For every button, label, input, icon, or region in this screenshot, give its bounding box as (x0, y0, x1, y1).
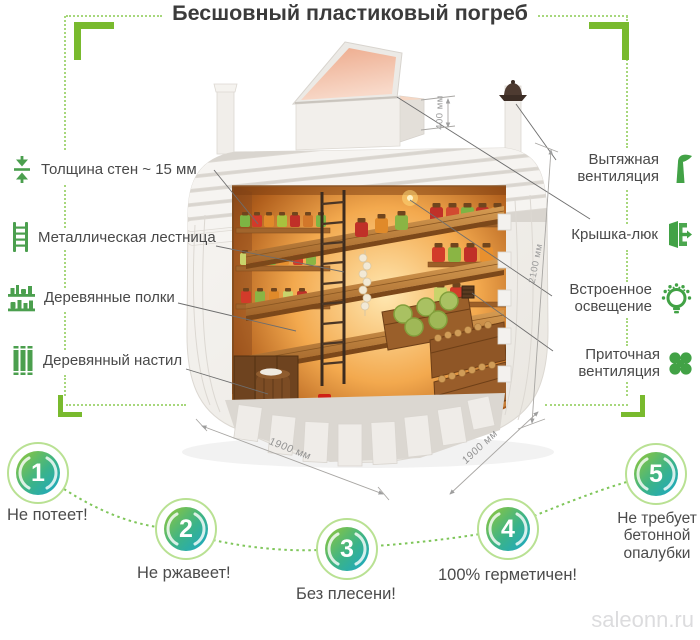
wooden-floor-icon (12, 346, 34, 375)
supply-vent-icon (669, 352, 692, 375)
label-row-wall-thickness: Толщина стен ~ 15 мм (12, 156, 197, 183)
benefit-label-5: Не требует бетонной опалубки (609, 510, 700, 562)
exhaust-vent-icon (668, 153, 692, 183)
feature-label: Металлическая лестница (38, 229, 216, 246)
benefit-label-1: Не потеет! (7, 506, 88, 525)
feature-label: Деревянный настил (43, 352, 182, 369)
benefit-number: 4 (501, 515, 515, 544)
built-in-lighting-icon (661, 282, 692, 315)
benefit-number: 5 (649, 460, 663, 489)
benefit-badge-3: 3 (316, 518, 378, 580)
dimension-hatch-height: 400 мм (435, 93, 446, 133)
watermark: saleonn.ru (591, 607, 694, 633)
wall-thickness-icon (12, 156, 32, 183)
benefit-label-4: 100% герметичен! (438, 566, 577, 585)
benefit-badge-5: 5 (625, 443, 687, 505)
label-row-exhaust-vent: Вытяжная вентиляция (571, 151, 692, 186)
benefit-label-2: Не ржавеет! (137, 564, 231, 583)
benefit-badge-2: 2 (155, 498, 217, 560)
infographic-plastic-cellar: Бесшовный пластиковый погреб (0, 0, 700, 640)
benefit-label-3: Без плесени! (296, 585, 396, 604)
label-row-built-in-lighting: Встроенное освещение (564, 281, 692, 316)
metal-ladder-icon (12, 222, 29, 252)
feature-label: Вытяжная вентиляция (571, 151, 659, 186)
benefit-badge-4: 4 (477, 498, 539, 560)
label-row-wooden-shelves: Деревянные полки (8, 283, 175, 312)
dimension-lines (196, 96, 558, 500)
label-row-metal-ladder: Металлическая лестница (12, 222, 216, 252)
feature-label: Толщина стен ~ 15 мм (41, 161, 197, 178)
feature-label: Крышка-люк (570, 226, 658, 243)
benefit-number: 2 (179, 515, 193, 544)
wooden-shelves-icon (8, 283, 35, 312)
callout-lines (178, 97, 590, 394)
hatch-cover-icon (667, 221, 692, 248)
label-row-hatch-cover: Крышка-люк (570, 221, 692, 248)
benefit-badge-1: 1 (7, 442, 69, 504)
label-row-wooden-floor: Деревянный настил (12, 346, 182, 375)
label-row-supply-vent: Приточная вентиляция (572, 346, 692, 381)
benefit-number: 1 (31, 459, 45, 488)
feature-label: Приточная вентиляция (572, 346, 660, 381)
feature-label: Встроенное освещение (564, 281, 652, 316)
benefit-number: 3 (340, 535, 354, 564)
feature-label: Деревянные полки (44, 289, 175, 306)
